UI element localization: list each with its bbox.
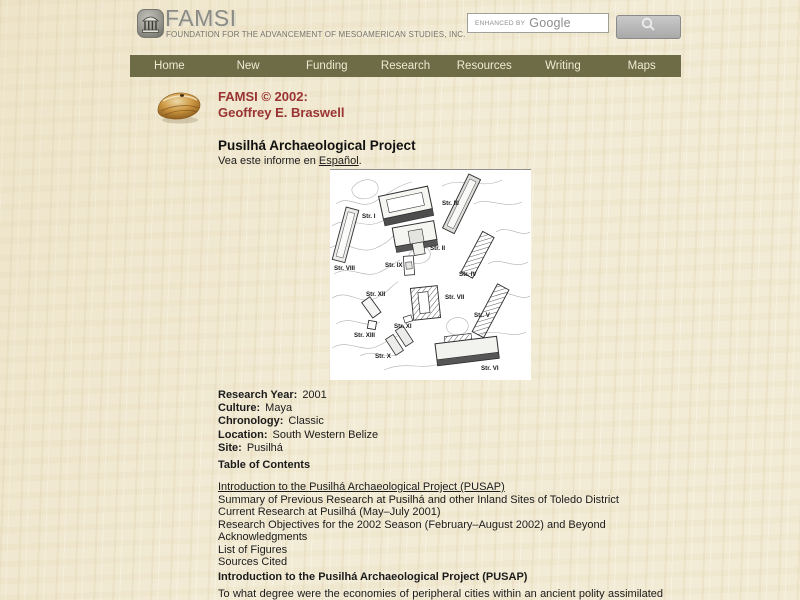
- search-button[interactable]: [616, 15, 681, 39]
- map-label-str-ix: Str. IX: [385, 262, 403, 269]
- map-label-str-v: Str. V: [474, 312, 491, 319]
- famsi-logo-subtitle: FOUNDATION FOR THE ADVANCEMENT OF MESOAM…: [166, 30, 466, 39]
- shell-icon: [155, 89, 205, 127]
- language-note: Vea este informe en Español.: [218, 155, 362, 167]
- page-title: Pusilhá Archaeological Project: [218, 138, 416, 153]
- toc-item-current-research: Current Research at Pusilhá (May–July 20…: [218, 506, 668, 519]
- nav-item-new[interactable]: New: [209, 60, 288, 72]
- toc-item-sources-cited: Sources Cited: [218, 556, 668, 569]
- map-label-str-iv: Str. IV: [459, 271, 477, 278]
- nav-item-writing[interactable]: Writing: [524, 60, 603, 72]
- metadata-row-site: Site:Pusilhá: [218, 442, 378, 455]
- map-label-str-xi: Str. XI: [394, 323, 412, 330]
- map-label-str-xii: Str. XII: [366, 291, 386, 298]
- metadata-label: Chronology:: [218, 415, 283, 427]
- metadata-block: Research Year:2001 Culture:Maya Chronolo…: [218, 389, 378, 455]
- toc-item-list-of-figures: List of Figures: [218, 544, 668, 557]
- nav-item-research[interactable]: Research: [366, 60, 445, 72]
- map-label-str-ii: Str. II: [430, 245, 445, 252]
- language-note-period: .: [359, 155, 362, 167]
- metadata-value: Maya: [265, 402, 292, 414]
- map-label-str-vi: Str. VI: [481, 365, 499, 372]
- map-label-str-i: Str. I: [362, 213, 376, 220]
- google-brand-text: Google: [529, 16, 571, 30]
- famsi-page: FAMSI FOUNDATION FOR THE ADVANCEMENT OF …: [0, 0, 800, 600]
- famsi-logo-text[interactable]: FAMSI: [165, 5, 237, 32]
- metadata-label: Location:: [218, 429, 268, 441]
- map-label-str-vii: Str. VII: [445, 294, 465, 301]
- byline-copyright: FAMSI © 2002:: [218, 89, 344, 105]
- search-input[interactable]: ENHANCED BY Google: [467, 13, 609, 33]
- spanish-link[interactable]: Español: [319, 155, 359, 167]
- main-nav: Home New Funding Research Resources Writ…: [130, 55, 681, 77]
- site-map-image: Str. I Str. II Str. III Str. IV Str. V S…: [330, 169, 531, 380]
- toc-item-introduction[interactable]: Introduction to the Pusilhá Archaeologic…: [218, 481, 668, 494]
- introduction-heading: Introduction to the Pusilhá Archaeologic…: [218, 571, 527, 583]
- metadata-row-location: Location:South Western Belize: [218, 429, 378, 442]
- famsi-logo-icon[interactable]: [137, 9, 164, 38]
- nav-item-maps[interactable]: Maps: [602, 60, 681, 72]
- toc-item-acknowledgments: Acknowledgments: [218, 531, 668, 544]
- language-note-text: Vea este informe en: [218, 155, 319, 167]
- toc-heading: Table of Contents: [218, 459, 310, 471]
- search-placeholder-prefix: ENHANCED BY: [475, 20, 525, 27]
- metadata-value: South Western Belize: [273, 429, 379, 441]
- toc-item-research-objectives: Research Objectives for the 2002 Season …: [218, 519, 668, 532]
- metadata-label: Culture:: [218, 402, 260, 414]
- nav-item-home[interactable]: Home: [130, 60, 209, 72]
- metadata-row-research-year: Research Year:2001: [218, 389, 378, 402]
- metadata-row-culture: Culture:Maya: [218, 402, 378, 415]
- byline: FAMSI © 2002: Geoffrey E. Braswell: [218, 89, 344, 121]
- metadata-row-chronology: Chronology:Classic: [218, 415, 378, 428]
- metadata-value: 2001: [302, 389, 326, 401]
- toc-item-summary: Summary of Previous Research at Pusilhá …: [218, 494, 668, 507]
- nav-item-resources[interactable]: Resources: [445, 60, 524, 72]
- metadata-value: Pusilhá: [247, 442, 283, 454]
- byline-author: Geoffrey E. Braswell: [218, 105, 344, 121]
- introduction-paragraph: To what degree were the economies of per…: [218, 587, 663, 600]
- map-label-str-viii: Str. VIII: [334, 265, 355, 272]
- metadata-label: Site:: [218, 442, 242, 454]
- search-icon: [641, 17, 656, 37]
- toc-list: Introduction to the Pusilhá Archaeologic…: [218, 481, 668, 569]
- metadata-value: Classic: [288, 415, 323, 427]
- map-label-str-xiii: Str. XIII: [354, 332, 375, 339]
- map-label-str-iii: Str. III: [442, 200, 459, 207]
- map-label-str-x: Str. X: [375, 353, 392, 360]
- metadata-label: Research Year:: [218, 389, 297, 401]
- nav-item-funding[interactable]: Funding: [287, 60, 366, 72]
